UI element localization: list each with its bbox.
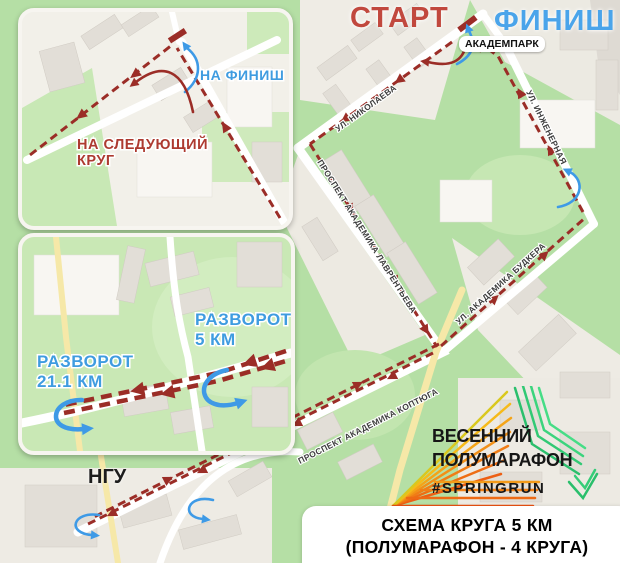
course-info-line1: СХЕМА КРУГА 5 КМ [302, 515, 620, 537]
inset2-turn21-label-2: 21.1 КМ [37, 372, 103, 391]
inset-turnaround-detail: РАЗВОРОТ 5 КМ РАЗВОРОТ 21.1 КМ [18, 233, 295, 455]
logo-hashtag: #SPRINGRUN [432, 480, 545, 497]
start-label: СТАРТ [350, 2, 449, 35]
course-map-poster: УЛ. НИКОЛАЕВА УЛ. ИНЖЕНЕРНАЯ ПРОСПЕКТ АК… [0, 0, 620, 563]
akadempark-label: АКАДЕМПАРК [459, 36, 545, 52]
logo-title-line1: ВЕСЕННИЙ [432, 426, 531, 447]
inset2-turn5-label-1: РАЗВОРОТ [195, 310, 291, 329]
inset2-turn21-label-1: РАЗВОРОТ [37, 352, 134, 371]
course-info-line2: (ПОЛУМАРАФОН - 4 КРУГА) [302, 537, 620, 559]
inset-finish-detail: НА ФИНИШ НА СЛЕДУЮЩИЙ КРУГ [18, 8, 293, 230]
logo-title-line2: ПОЛУМАРАФОН [432, 450, 572, 471]
course-info-box: СХЕМА КРУГА 5 КМ (ПОЛУМАРАФОН - 4 КРУГА) [302, 506, 620, 563]
ngu-label: НГУ [88, 466, 126, 489]
event-logo: ВЕСЕННИЙ ПОЛУМАРАФОН #SPRINGRUN [383, 386, 619, 512]
inset1-next-lap-label-1: НА СЛЕДУЮЩИЙ [77, 135, 208, 153]
inset1-next-lap-label-2: КРУГ [77, 153, 115, 169]
inset2-turn5-label-2: 5 КМ [195, 330, 236, 349]
finish-label: ФИНИШ [494, 5, 616, 38]
inset1-to-finish-label: НА ФИНИШ [200, 67, 284, 83]
